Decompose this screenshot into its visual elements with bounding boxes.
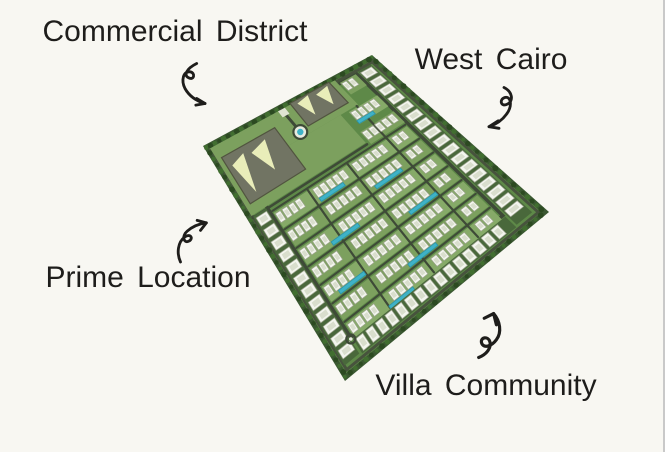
label-commercial-district: Commercial District bbox=[42, 17, 307, 47]
label-west-cairo: West Cairo bbox=[415, 45, 568, 75]
curved-arrow-up-right-icon bbox=[170, 217, 216, 267]
label-prime-location: Prime Location bbox=[45, 263, 250, 293]
curved-arrow-down-right-icon bbox=[174, 61, 216, 111]
label-villa-community: Villa Community bbox=[375, 371, 596, 401]
curved-arrow-up-left-icon bbox=[469, 308, 507, 364]
page: Commercial District West Cairo Prime Loc… bbox=[0, 0, 668, 452]
curved-arrow-down-left-icon bbox=[477, 85, 521, 135]
